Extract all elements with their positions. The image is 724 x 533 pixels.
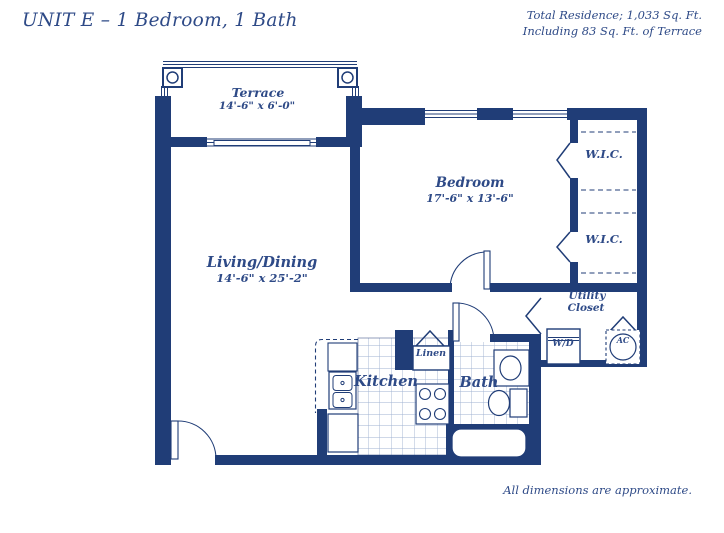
kitchen-label: Kitchen: [354, 374, 418, 389]
wic-upper-bifold-icon: [557, 143, 570, 178]
wic-lower-label: W.I.C.: [585, 233, 622, 245]
refrigerator: [328, 414, 358, 452]
floorplan-drawing: [0, 0, 724, 533]
terrace-sliding-door: [207, 139, 316, 146]
bedroom-label: Bedroom: [436, 176, 505, 190]
dishwasher: [328, 343, 357, 371]
wic-upper-label: W.I.C.: [585, 148, 622, 160]
linen-label: Linen: [416, 349, 446, 359]
utility-closet-label-line1: Utility: [569, 291, 606, 302]
residence-terrace: Including 83 Sq. Ft. of Terrace: [523, 24, 702, 40]
living-dining-label: Living/Dining: [207, 255, 317, 270]
floorplan-page: UNIT E – 1 Bedroom, 1 Bath Total Residen…: [0, 0, 724, 533]
bathtub: [452, 429, 526, 457]
terrace-label: Terrace: [232, 86, 285, 99]
living-dining-dimensions: 14'-6" x 25'-2": [216, 272, 307, 284]
washer-dryer-label: W/D: [552, 340, 573, 349]
bath-door: [453, 303, 494, 341]
entry-door: [171, 421, 216, 459]
kitchen-sink: [329, 372, 356, 409]
stove: [416, 384, 449, 424]
bath-label: Bath: [460, 375, 499, 390]
wic-lower-bifold-icon: [557, 232, 570, 262]
footnote: All dimensions are approximate.: [503, 483, 692, 497]
terrace-dimensions: 14'-6" x 6'-0": [219, 101, 295, 112]
bath-vanity-sink: [494, 350, 529, 386]
ac-label: AC: [617, 336, 630, 344]
residence-summary: Total Residence; 1,033 Sq. Ft. Including…: [523, 8, 702, 39]
bedroom-dimensions: 17'-6" x 13'-6": [426, 193, 513, 205]
bedroom-door: [450, 251, 490, 289]
utility-closet-label-line2: Closet: [568, 303, 605, 314]
utility-bifold-icon: [526, 298, 541, 334]
residence-total: Total Residence; 1,033 Sq. Ft.: [523, 8, 702, 24]
page-title: UNIT E – 1 Bedroom, 1 Bath: [22, 10, 298, 31]
